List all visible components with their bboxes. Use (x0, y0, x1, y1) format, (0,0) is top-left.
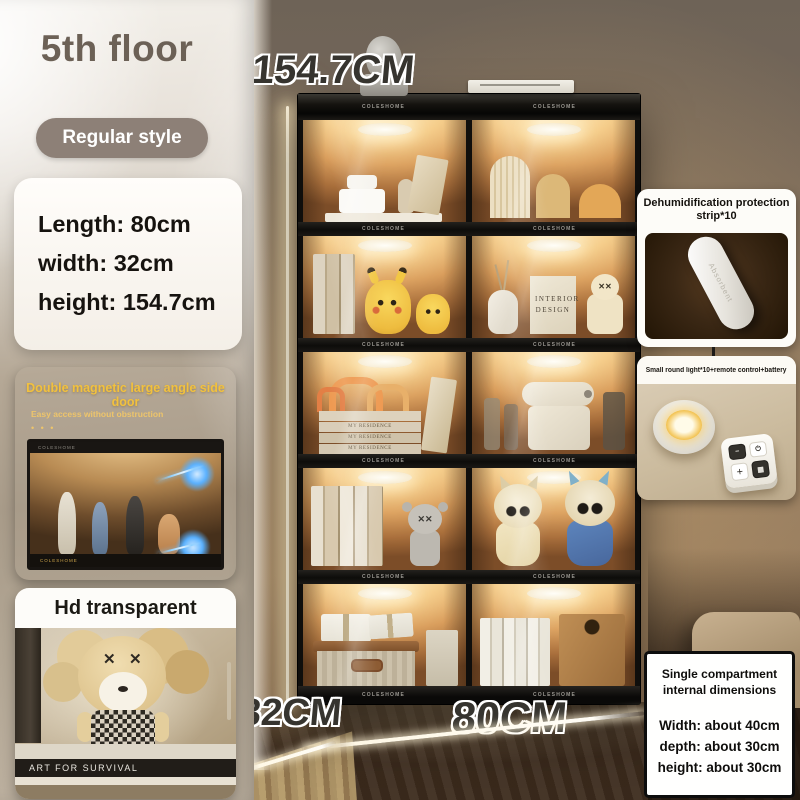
feature2-title: Hd transparent (54, 597, 196, 620)
remote-button: ⏻ (749, 441, 768, 458)
accessory-card-round-light: Small round light*10+remote control+batt… (637, 356, 796, 500)
remote-button: ▦ (751, 460, 770, 479)
length-line: Length: 80cm (38, 205, 242, 244)
brand-label: COLESHOME (533, 458, 576, 464)
round-led-light (527, 123, 581, 136)
brand-label: COLESHOME (362, 226, 405, 232)
brand-label: COLESHOME (533, 342, 576, 348)
pikachu-plush-small (416, 294, 450, 334)
wave-sculpture (367, 384, 409, 412)
floor-label: 5th floor (0, 28, 234, 70)
puck-light-glow (666, 410, 702, 440)
product-infographic: COLESHOME COLESHOME COLESHOME COLESHOME (0, 0, 800, 800)
brand-label: COLESHOME (533, 104, 576, 110)
anime-figure (58, 492, 76, 554)
vase (488, 290, 518, 334)
leaning-book (407, 155, 448, 216)
height-measurement: 154.7CM (250, 48, 416, 93)
horn-doll-blue-head (565, 480, 615, 526)
book-stack-bar (15, 744, 236, 759)
book-title: INTERIOR DESIGN (535, 294, 571, 316)
door-handle (227, 662, 231, 720)
internal-dimensions-lines: Width: about 40cm depth: about 30cm heig… (658, 716, 782, 779)
dehumidifier-title: Dehumidification protection strip*10 (637, 189, 796, 227)
bear-mane (165, 650, 209, 694)
width-line: width: 32cm (38, 244, 242, 283)
bear-x-eye: ✕ (103, 650, 116, 668)
internal-dimensions-title: Single compartment internal dimensions (653, 666, 786, 698)
kaws-bear-cream (587, 294, 623, 334)
canister (603, 392, 625, 450)
size-card: Length: 80cm width: 32cm height: 154.7cm (14, 178, 242, 350)
mini-display-case: COLESHOME COLESHOME (27, 439, 224, 570)
round-puck-light (653, 400, 715, 454)
feature-thumbnail-hd-transparent: Hd transparent ✕ ✕ ART FOR SURVIVAL (15, 588, 236, 799)
cake-decor-top (347, 175, 377, 189)
capsule-text: Absorbent (707, 262, 735, 304)
dehumidifier-photo: Absorbent (645, 233, 788, 339)
kaws-figure-ear (438, 502, 448, 512)
anime-figure (92, 502, 108, 554)
kaws-figure-gray (410, 530, 440, 566)
book-title: ART FOR SURVIVAL (29, 763, 138, 773)
residence-book (319, 411, 421, 421)
round-led-light (527, 355, 581, 368)
compartment-r4c2 (472, 468, 635, 570)
bear-nose (118, 686, 128, 692)
card-connector-line (712, 347, 715, 356)
round-light-title: Small round light*10+remote control+batt… (646, 367, 787, 374)
internal-width: Width: about 40cm (658, 716, 782, 737)
compartment-r5c1 (303, 584, 466, 686)
compartment-r5c2 (472, 584, 635, 686)
round-led-light (527, 587, 581, 600)
led-floor-lamp (286, 106, 289, 706)
compartment-r1c1 (303, 120, 466, 222)
bottle (484, 398, 500, 450)
round-led-light (358, 471, 412, 484)
white-book-row (480, 618, 550, 686)
leaning-book (421, 377, 457, 454)
bear-x-eye: ✕ (129, 650, 142, 668)
book-spines (311, 486, 383, 566)
arch-decor (490, 156, 530, 218)
gift-box (321, 614, 371, 642)
brand-label: COLESHOME (40, 558, 78, 563)
feature-thumbnail-magnetic-door: Double magnetic large angle side door Ea… (15, 367, 236, 580)
gift-box (368, 612, 414, 639)
feature2-title-strip: Hd transparent (15, 588, 236, 628)
internal-height: height: about 30cm (658, 758, 782, 779)
kaws-figure-ear (402, 502, 412, 512)
brand-label: COLESHOME (533, 574, 576, 580)
bear-mane (43, 662, 83, 702)
compartment-r3c1: MY RESIDENCE MY RESIDENCE MY RESIDENCE (303, 352, 466, 454)
compartment-r1c2 (472, 120, 635, 222)
bottle (504, 404, 518, 450)
machine-dial (584, 390, 592, 398)
pikachu-ear (366, 266, 380, 285)
kaws-bear-head: ✕✕ (591, 274, 619, 300)
side-book-spine (15, 628, 41, 743)
compartment-r3c2 (472, 352, 635, 454)
horn-doll-cream-body (496, 522, 540, 566)
book-spine-line (480, 84, 560, 86)
dehumidifier-strip: Absorbent (682, 233, 761, 336)
brand-label: COLESHOME (533, 226, 576, 232)
internal-dimensions-box: Single compartment internal dimensions W… (644, 651, 795, 798)
small-boxes (426, 630, 458, 686)
round-light-title-strip: Small round light*10+remote control+batt… (637, 356, 796, 384)
case-base-beam: COLESHOME (30, 554, 221, 567)
book-on-top (468, 80, 574, 93)
shelf-beam: COLESHOME COLESHOME (298, 454, 640, 468)
horn-doll-cream-head (494, 484, 542, 528)
brand-label: COLESHOME (362, 104, 405, 110)
books-flat (325, 213, 442, 222)
round-led-light (358, 239, 412, 252)
residence-book: MY RESIDENCE (319, 433, 421, 443)
residence-book: MY RESIDENCE (319, 444, 421, 454)
accessory-card-dehumidifier: Dehumidification protection strip*10 Abs… (637, 189, 796, 347)
compartment-r4c1: ✕✕ (303, 468, 466, 570)
book-art-for-survival: ART FOR SURVIVAL (15, 759, 236, 777)
brand-label: COLESHOME (362, 692, 405, 698)
round-led-light (358, 355, 412, 368)
style-badge: Regular style (36, 118, 208, 158)
feature1-title: Double magnetic large angle side door (15, 381, 236, 409)
height-line: height: 154.7cm (38, 283, 242, 322)
interior-design-book: INTERIOR DESIGN (530, 276, 576, 334)
feature1-subtitle: Easy access without obstruction (31, 409, 163, 419)
wave-sculpture (317, 387, 345, 412)
bear-arm (153, 712, 169, 742)
brand-label: COLESHOME (362, 342, 405, 348)
magnetic-glow (179, 456, 215, 492)
info-panel: 5th floor Regular style Length: 80cm wid… (0, 0, 254, 800)
pikachu-ear (394, 266, 408, 285)
round-led-light (527, 239, 581, 252)
arch-decor (536, 174, 570, 218)
horn-doll-blue-body (567, 520, 613, 566)
twig (503, 260, 509, 292)
feature1-dots: • • • (31, 423, 55, 433)
cabinet-top-beam: COLESHOME COLESHOME (298, 94, 640, 120)
wooden-box (559, 614, 625, 686)
pikachu-plush (365, 280, 411, 334)
cake-decor (339, 189, 385, 213)
box-handle (351, 659, 383, 672)
anime-figure (126, 496, 144, 554)
brand-label: COLESHOME (362, 458, 405, 464)
compartment-r2c2: INTERIOR DESIGN ✕✕ (472, 236, 635, 338)
compartment-r2c1 (303, 236, 466, 338)
width-measurement: 80CM (450, 694, 569, 743)
remote-control: − ⏻ ＋ ▦ (720, 433, 778, 489)
round-led-light (358, 123, 412, 136)
brand-label: COLESHOME (362, 574, 405, 580)
round-led-light (358, 587, 412, 600)
display-cabinet: COLESHOME COLESHOME COLESHOME COLESHOME (298, 94, 640, 704)
shelf-beam: COLESHOME COLESHOME (298, 338, 640, 352)
case-top-beam: COLESHOME (30, 442, 221, 453)
residence-book: MY RESIDENCE (319, 422, 421, 432)
bear-face (99, 672, 147, 712)
arch-decor (579, 184, 621, 218)
shelf-beam: COLESHOME COLESHOME (298, 222, 640, 236)
table-surface (15, 785, 236, 799)
brand-label: COLESHOME (38, 445, 76, 450)
bear-photo: ✕ ✕ ART FOR SURVIVAL (15, 628, 236, 799)
shelf-beam: COLESHOME COLESHOME (298, 570, 640, 584)
coffee-machine-body (528, 406, 590, 450)
book-spines (313, 254, 355, 334)
remote-button: − (728, 443, 747, 460)
kaws-figure-head: ✕✕ (408, 504, 442, 534)
internal-depth: depth: about 30cm (658, 737, 782, 758)
remote-button: ＋ (730, 462, 749, 481)
